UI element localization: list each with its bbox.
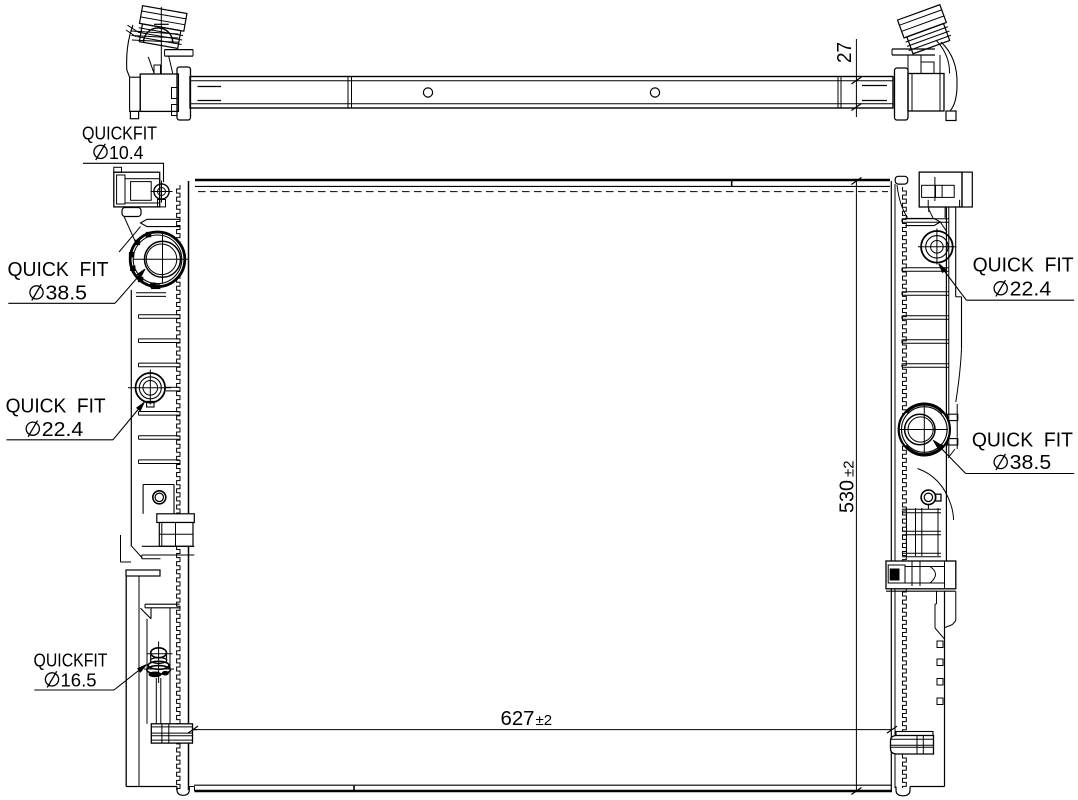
svg-text:38.5: 38.5 [1010,452,1051,474]
svg-text:QUICK FIT: QUICK FIT [972,429,1073,451]
svg-text:27: 27 [834,42,856,63]
svg-text:±2: ±2 [841,460,858,477]
svg-text:±2: ±2 [536,712,553,729]
svg-text:16.5: 16.5 [61,671,97,691]
svg-text:QUICKFIT: QUICKFIT [82,124,157,144]
svg-text:530: 530 [837,480,859,513]
svg-text:10.4: 10.4 [109,143,144,163]
svg-text:QUICK FIT: QUICK FIT [6,396,106,418]
svg-text:38.5: 38.5 [46,283,88,305]
svg-text:QUICKFIT: QUICKFIT [34,651,108,671]
svg-text:QUICK FIT: QUICK FIT [973,254,1074,276]
svg-text:627: 627 [501,708,535,730]
svg-text:22.4: 22.4 [42,419,84,441]
svg-text:22.4: 22.4 [1010,278,1051,300]
svg-text:QUICK FIT: QUICK FIT [8,259,109,281]
